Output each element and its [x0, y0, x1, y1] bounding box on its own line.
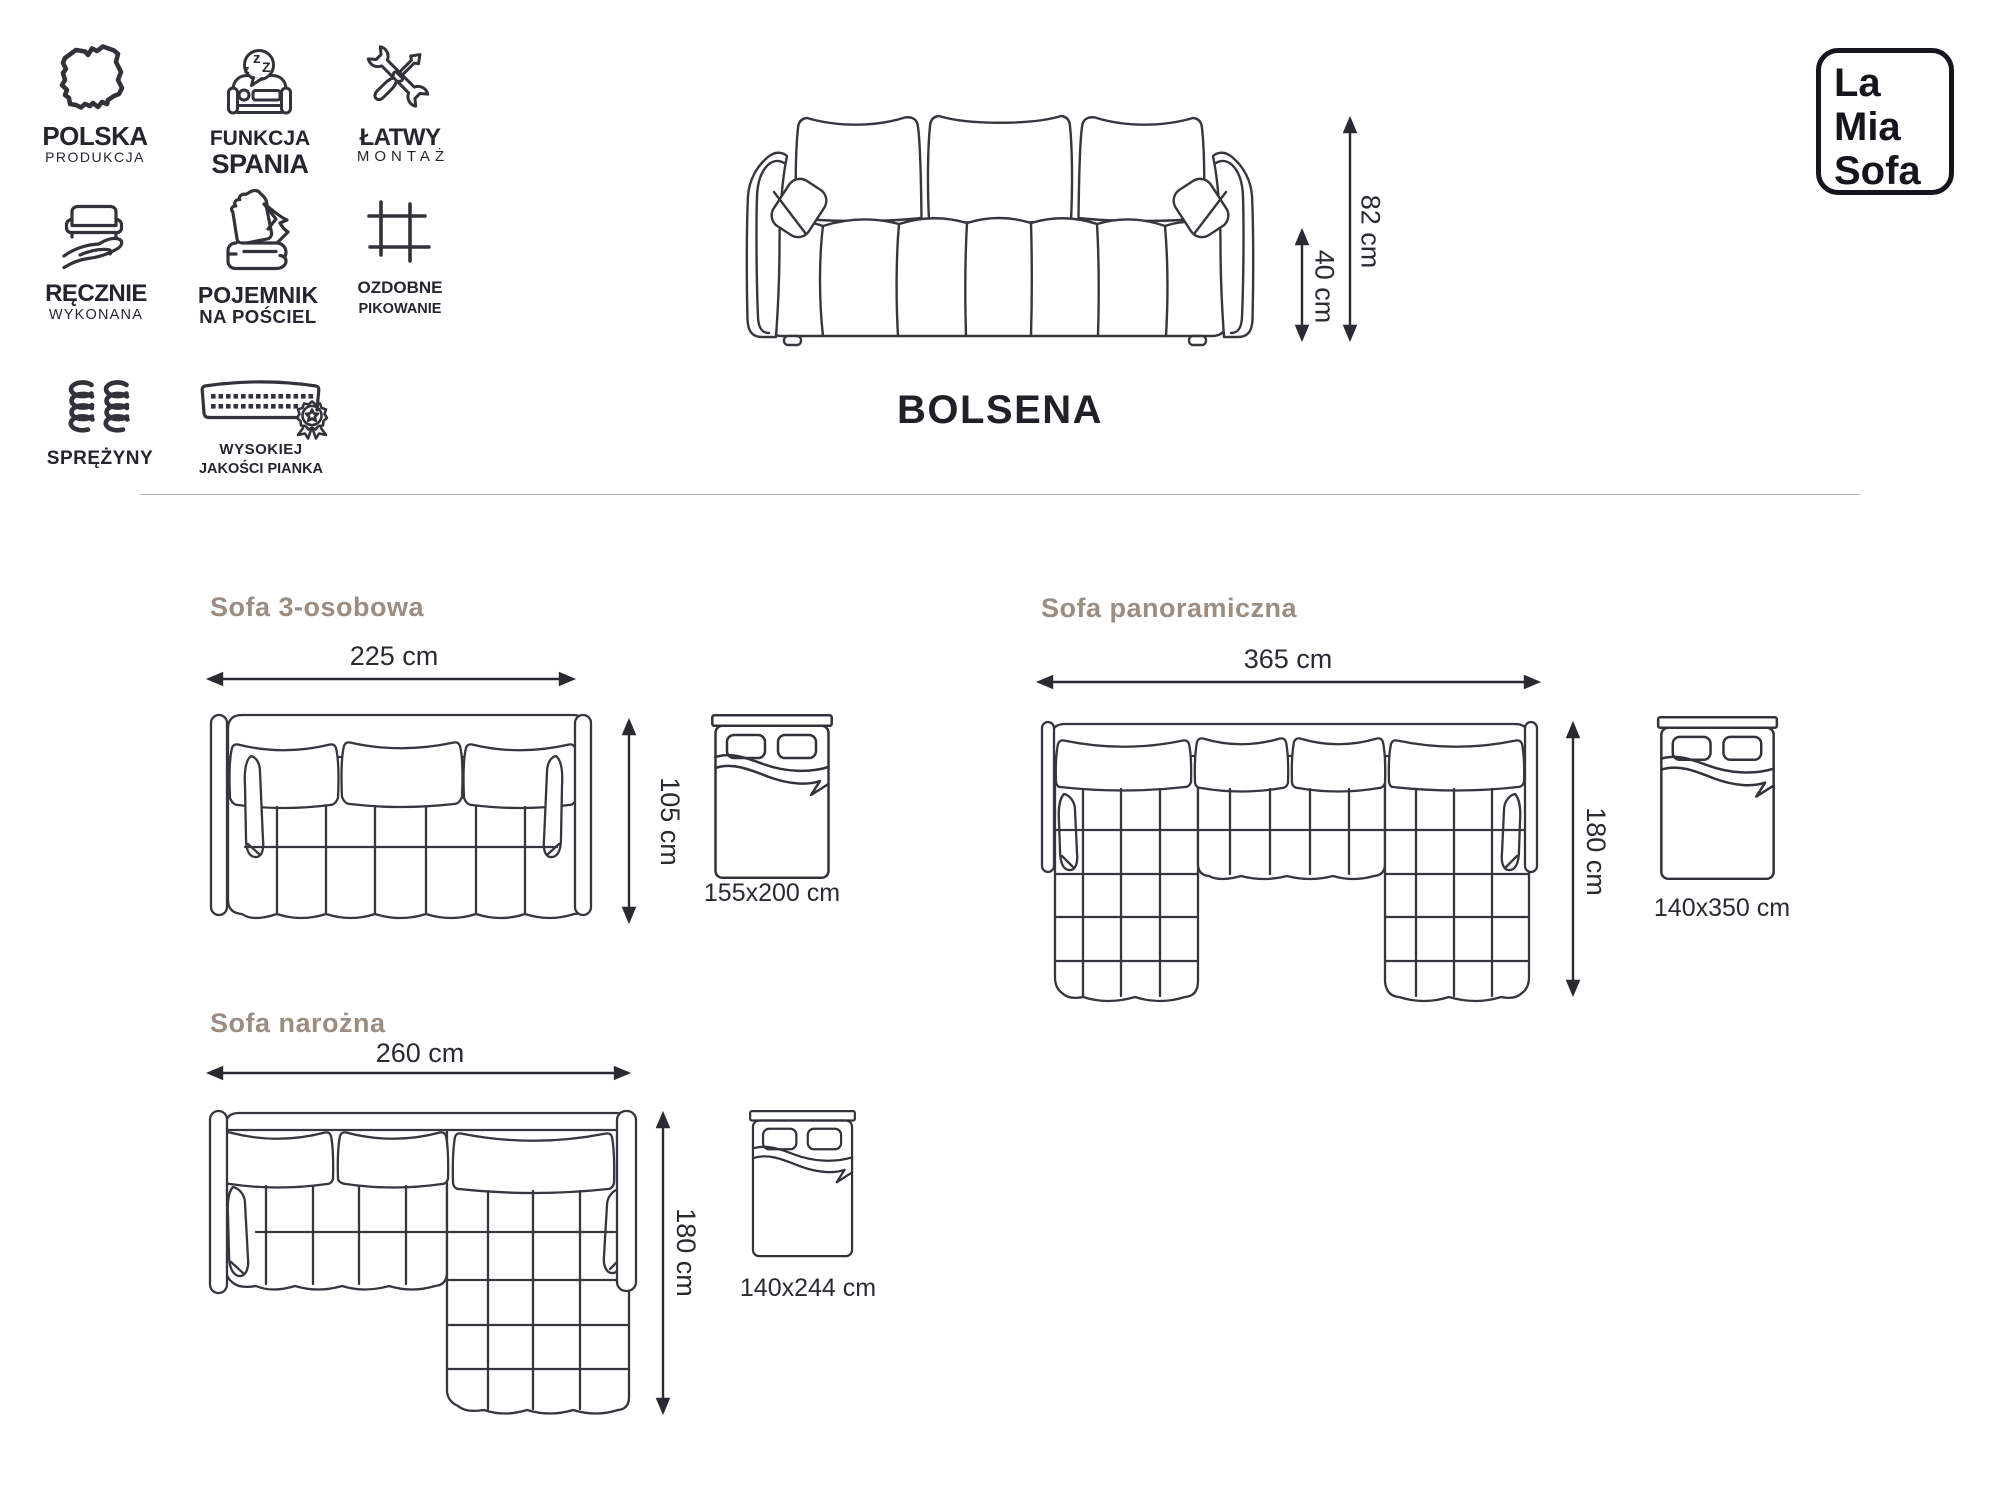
svg-text:Z: Z [262, 59, 271, 75]
svg-text:z: z [244, 64, 250, 76]
svg-text:z: z [253, 50, 261, 67]
